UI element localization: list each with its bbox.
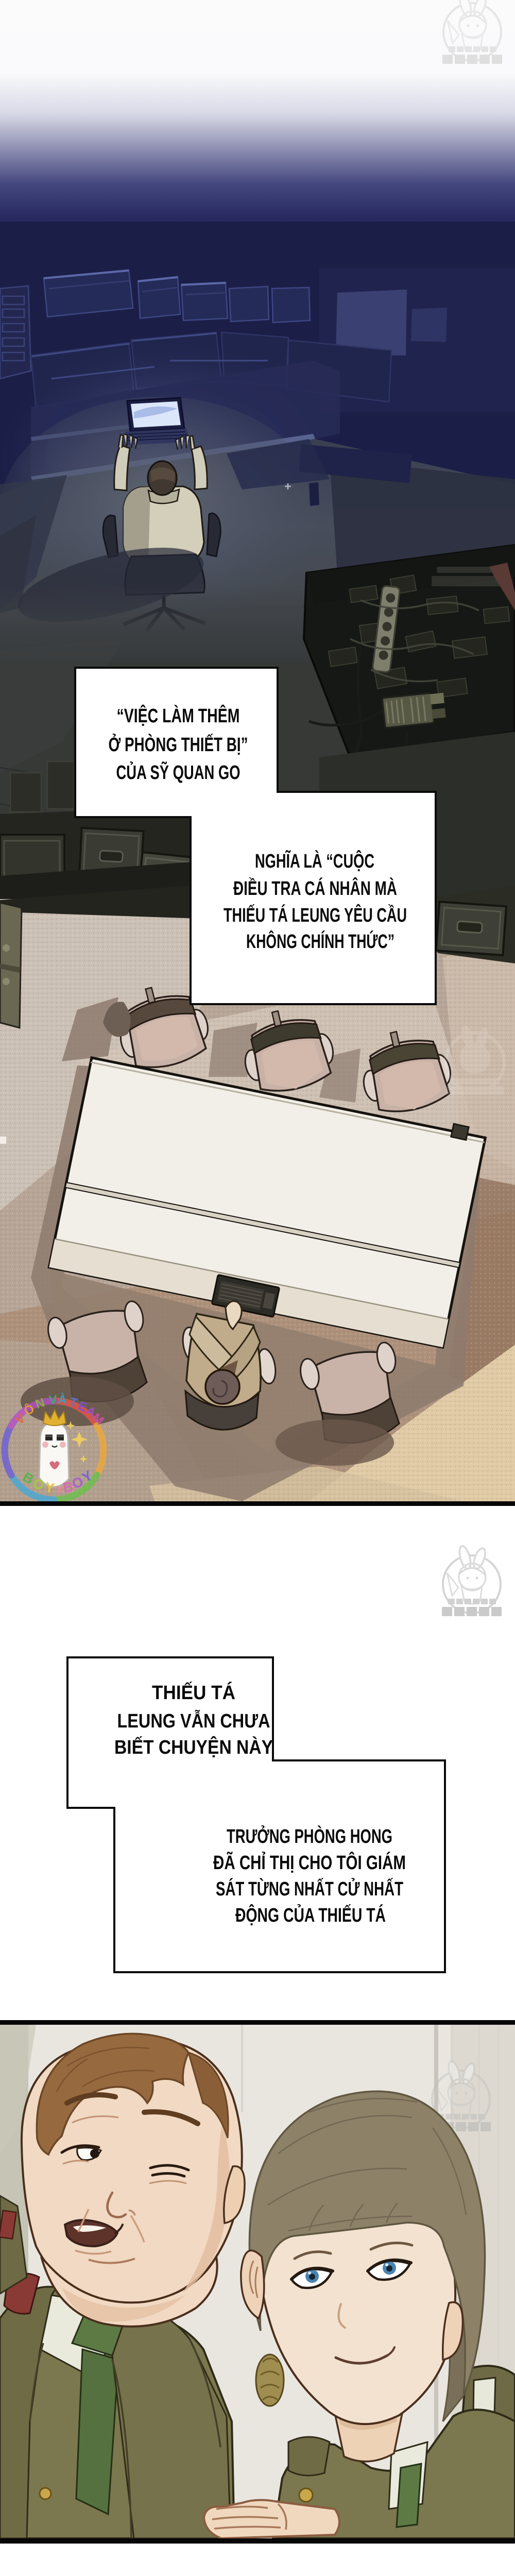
svg-text:Ở PHÒNG THIẾT BỊ”: Ở PHÒNG THIẾT BỊ” <box>109 733 248 756</box>
svg-text:ĐIỀU TRA CÁ NHÂN MÀ: ĐIỀU TRA CÁ NHÂN MÀ <box>233 877 397 900</box>
svg-text:SÁT TỪNG NHẤT CỬ NHẤT: SÁT TỪNG NHẤT CỬ NHẤT <box>216 1877 403 1900</box>
svg-text:THIẾU TÁ LEUNG YÊU CẦU: THIẾU TÁ LEUNG YÊU CẦU <box>224 904 407 926</box>
svg-text:BIẾT CHUYỆN NÀY: BIẾT CHUYỆN NÀY <box>114 1736 273 1758</box>
svg-text:ĐỘNG CỦA THIẾU TÁ: ĐỘNG CỦA THIẾU TÁ <box>235 1903 386 1926</box>
svg-text:LEUNG VẪN CHƯA: LEUNG VẪN CHƯA <box>117 1709 270 1732</box>
svg-text:NGHĨA LÀ “CUỘC: NGHĨA LÀ “CUỘC <box>255 849 374 872</box>
svg-text:THIẾU TÁ: THIẾU TÁ <box>152 1681 235 1704</box>
svg-text:V: V <box>48 1393 58 1408</box>
svg-text:“VIỆC LÀM THÊM: “VIỆC LÀM THÊM <box>117 704 240 727</box>
svg-text:TRƯỞNG PHÒNG HONG: TRƯỞNG PHÒNG HONG <box>227 1825 392 1848</box>
svg-text:ĐÃ CHỈ THỊ CHO TÔI GIÁM: ĐÃ CHỈ THỊ CHO TÔI GIÁM <box>213 1851 406 1874</box>
svg-text:CỦA SỸ QUAN GO: CỦA SỸ QUAN GO <box>116 761 241 784</box>
svg-text:KHÔNG CHÍNH THỨC”: KHÔNG CHÍNH THỨC” <box>246 929 394 953</box>
svg-text:À: À <box>58 1392 67 1407</box>
